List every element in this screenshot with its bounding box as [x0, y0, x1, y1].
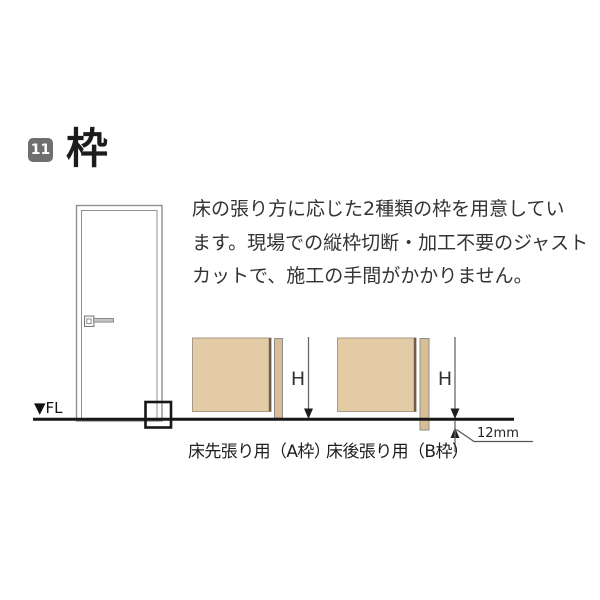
technical-drawing: [0, 0, 600, 600]
offset-dim-label: 12mm: [477, 426, 519, 441]
dim-arrow-down-a: [304, 409, 313, 420]
dim-arrow-down-b: [451, 409, 460, 420]
height-dim-label-a: H: [287, 368, 309, 390]
wall-section-b: [338, 338, 417, 412]
frame-jamb-a: [275, 339, 283, 419]
caption-frame-a: 床先張り用（A枠）: [188, 437, 330, 462]
catalog-page: 11 枠 床の張り方に応じた2種類の枠を用意してい ます。現場での縦枠切断・加工…: [0, 0, 600, 600]
door-handle-lever-icon: [94, 319, 114, 323]
height-dim-label-b: H: [434, 368, 456, 390]
frame-jamb-b: [420, 339, 429, 431]
caption-frame-b: 床後張り用（B枠）: [326, 437, 468, 462]
wall-section-a: [193, 338, 272, 412]
door-handle-keyhole: [87, 319, 91, 324]
floor-level-label: ▼FL: [34, 399, 63, 417]
